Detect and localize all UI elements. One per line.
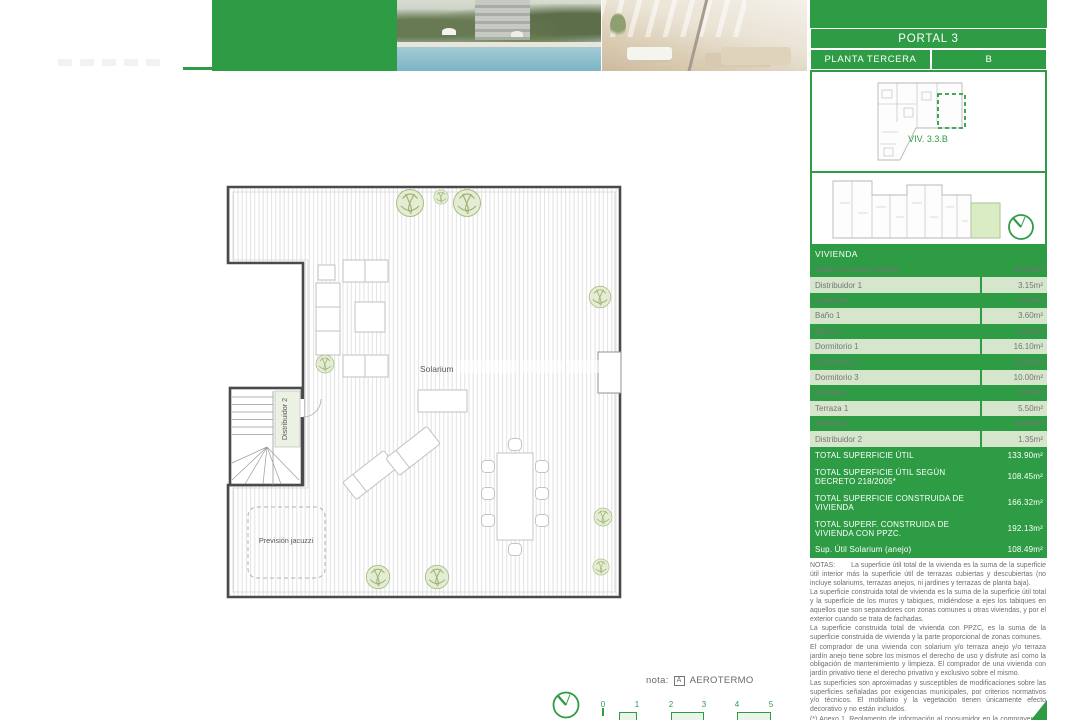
floor-header: PLANTA TERCERA	[810, 49, 931, 70]
aerotermo-note: nota: A AEROTERMO	[646, 675, 754, 686]
aerotermo-marker: A	[674, 676, 685, 686]
scale-number: 1	[632, 700, 642, 709]
portal-header: PORTAL 3	[810, 28, 1047, 49]
table-row: Dormitorio 210.05m²	[810, 354, 1047, 369]
total-row: TOTAL SUPERF. CONSTRUIDA DE VIVIENDA CON…	[810, 517, 1047, 542]
table-header-label: VIVIENDA	[810, 246, 980, 262]
scale-zero-tick	[602, 708, 604, 716]
mini-compass-icon	[1009, 215, 1033, 239]
table-row: Baño 24.30m²	[810, 324, 1047, 339]
table-row: Baño 13.60m²	[810, 308, 1047, 323]
faint-watermark	[58, 59, 168, 66]
terrace-photo	[602, 0, 807, 71]
notes-label: NOTAS:	[810, 562, 835, 569]
keyplan-panel: VIV. 3.3.B	[812, 72, 1045, 171]
stair-label: Distribuidor 2	[280, 398, 289, 440]
table-row: Distribuidor 13.15m²	[810, 277, 1047, 292]
notes-paragraph: El comprador de una vivienda con solariu…	[810, 644, 1046, 679]
pool-photo	[397, 0, 601, 71]
pool-photo-water	[397, 47, 601, 71]
terrace-photo-plant	[610, 13, 626, 39]
aerotermo-text: AEROTERMO	[690, 675, 754, 686]
table-row: Dormitorio 310.00m²	[810, 370, 1047, 385]
solarium-label: Solarium	[420, 364, 454, 374]
coffee-table	[355, 302, 385, 332]
pool-photo-umbrella	[442, 28, 456, 35]
unit-label: VIV. 3.3.B	[908, 134, 948, 144]
table-row: Terraza 230.05m²	[810, 416, 1047, 431]
scale-bar-segment	[671, 712, 704, 720]
right-panel: PORTAL 3 PLANTA TERCERA B VIV. 3.3.B	[810, 0, 1047, 558]
scale-number: 2	[666, 700, 676, 709]
dining-table	[497, 453, 533, 540]
table-row: Salón-Comedor-Cocina42.35m²	[810, 262, 1047, 277]
scale-number: 3	[699, 700, 709, 709]
unit-highlight-fill	[971, 203, 1000, 238]
notes-paragraph: La superficie construida total de vivien…	[810, 625, 1046, 643]
pool-photo-umbrella	[511, 31, 523, 37]
green-underline	[183, 67, 214, 70]
notes-paragraph: La superficie construida total de vivien…	[810, 589, 1046, 624]
overview-panel	[812, 173, 1045, 244]
plan-watermark	[458, 360, 615, 373]
unit-letter-header: B	[931, 49, 1047, 70]
notes-paragraph: Las superficies son aproximadas y suscep…	[810, 680, 1046, 715]
notes-paragraph: NOTAS:La superficie útil total de la viv…	[810, 562, 1046, 588]
scale-number: 4	[732, 700, 742, 709]
total-row: TOTAL SUPERFICIE ÚTIL SEGÚN DECRETO 218/…	[810, 465, 1047, 490]
scale-bar-segment	[737, 712, 771, 720]
overview-drawing	[812, 173, 1045, 244]
notes-paragraph: (*) Anexo 1. Reglamento de información a…	[810, 716, 1046, 720]
total-row: TOTAL SUPERFICIE CONSTRUIDA DE VIVIENDA1…	[810, 491, 1047, 516]
nota-label: nota:	[646, 675, 669, 686]
legal-notes: NOTAS:La superficie útil total de la viv…	[810, 562, 1046, 720]
brand-green-block	[212, 0, 397, 71]
planter-table	[418, 390, 467, 412]
table-row: Escalera3.00m²	[810, 385, 1047, 400]
keyplan-drawing: VIV. 3.3.B	[812, 72, 1045, 171]
table-header-row: VIVIENDA	[810, 246, 1047, 262]
table-row: Terraza 15.50m²	[810, 401, 1047, 416]
scale-number: 5	[766, 700, 776, 709]
floor-plan: Distribuidor 2 Previsión jacuzzi	[215, 175, 645, 615]
table-row: Distribuidor 21.35m²	[810, 431, 1047, 446]
total-row: Sup. Útil Solarium (anejo)108.49m²	[810, 543, 1047, 558]
total-row: TOTAL SUPERFICIE ÚTIL133.90m²	[810, 448, 1047, 463]
terrace-photo-sofa	[721, 47, 791, 65]
terrace-photo-table	[627, 47, 672, 60]
table-row: Dormitorio 116.10m²	[810, 339, 1047, 354]
plan-sheet: Distribuidor 2 Previsión jacuzzi	[0, 0, 1080, 720]
north-compass-icon	[551, 690, 581, 720]
table-row: Lavadero4.45m²	[810, 293, 1047, 308]
scale-bar-segment	[619, 712, 637, 720]
scale-number: 0	[598, 700, 608, 709]
jacuzzi-label: Previsión jacuzzi	[259, 536, 314, 545]
